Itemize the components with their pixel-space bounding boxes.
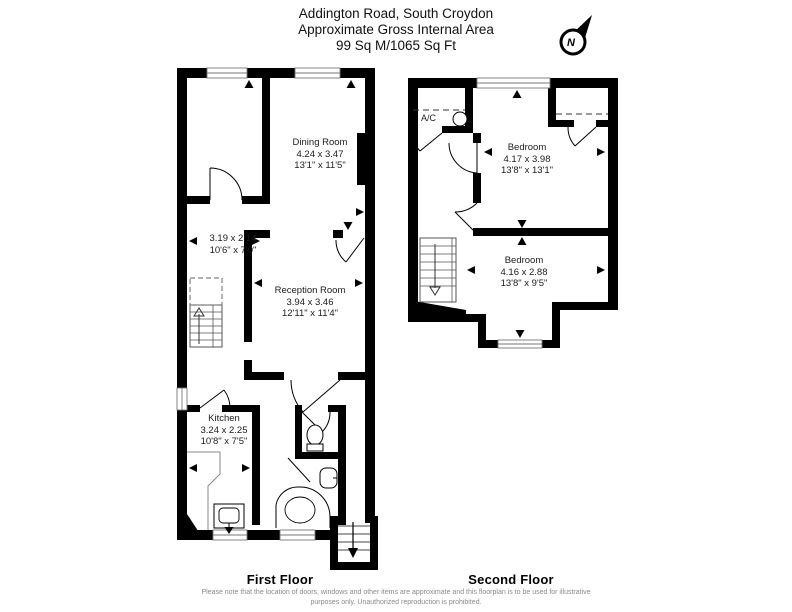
page-title: Addington Road, South Croydon	[299, 6, 493, 22]
sf-cylinder	[453, 112, 467, 126]
sf-ac-wall-s1	[408, 126, 418, 133]
floorplan-page: { "header": { "line1": "Addington Road, …	[0, 0, 792, 612]
ff-wall-reception-s1	[244, 372, 284, 380]
ff-chimney-breast	[357, 133, 375, 185]
disclaimer-line-2: purposes only. Unauthorized reproduction…	[310, 598, 481, 608]
ff-wall-store-s2	[242, 196, 270, 204]
sf-ac-wall-s2	[442, 126, 473, 133]
kitchen-metric: 3.24 x 2.25	[200, 425, 247, 437]
ff-staircase-up	[190, 278, 222, 347]
ff-wall-lobby1	[187, 405, 200, 412]
bedroom1-metric: 4.17 x 3.98	[501, 154, 553, 166]
ff-steps-down	[338, 522, 370, 558]
sf-dimension-markers	[467, 90, 605, 338]
second-floor-caption: Second Floor	[468, 572, 553, 587]
sf-bedroom-divider	[481, 228, 608, 236]
ff-stairwell-w	[330, 516, 338, 570]
dining-name: Dining Room	[293, 137, 348, 149]
ff-wall-kitchen-e	[252, 405, 260, 525]
toilet	[307, 425, 323, 451]
sf-windows	[477, 78, 550, 348]
sf-hall-wall-1	[473, 133, 481, 143]
second-floor-plan	[408, 78, 618, 348]
reception-imperial: 12'11" x 11'4"	[275, 308, 346, 320]
dining-imperial: 13'1" x 11'5"	[293, 160, 348, 172]
bedroom2-imperial: 13'8" x 9'5"	[500, 278, 547, 290]
basin	[320, 468, 337, 488]
sf-staircase-down	[420, 238, 456, 302]
ff-stairs-dashed-void	[190, 278, 222, 305]
bedroom2-metric: 4.16 x 2.88	[500, 267, 547, 279]
sf-hall-wall-2	[473, 173, 481, 203]
kitchen-imperial: 10'8" x 7'5"	[200, 436, 247, 448]
ff-wall-store-dining	[262, 78, 270, 200]
ff-wall-reception-s2	[338, 372, 365, 380]
page-subtitle-area: Approximate Gross Internal Area	[298, 22, 494, 38]
bedroom2-name: Bedroom	[500, 255, 547, 267]
store-imperial: 10'6" x 7'0"	[209, 245, 256, 257]
ac-cupboard-label: A/C	[421, 113, 436, 123]
kitchen-name: Kitchen	[200, 413, 247, 425]
ff-wall-left	[177, 68, 187, 520]
sf-wall-bottom-l	[408, 314, 486, 322]
ff-wall-wc-w	[295, 412, 302, 459]
sf-wall-right	[608, 78, 618, 306]
bedroom1-name: Bedroom	[501, 142, 553, 154]
ff-wall-wc-s	[295, 452, 343, 459]
ff-wall-dining-s2	[333, 230, 343, 238]
bathtub	[276, 487, 330, 528]
ff-stairwell-s	[330, 562, 378, 570]
room-label-bedroom2: Bedroom 4.16 x 2.88 13'8" x 9'5"	[500, 255, 547, 290]
first-floor-caption: First Floor	[247, 572, 313, 587]
compass-north-label: N	[567, 37, 575, 49]
room-label-bedroom1: Bedroom 4.17 x 3.98 13'8" x 13'1"	[501, 142, 553, 177]
sf-wall-bottom-r	[552, 302, 618, 310]
sf-hall-wall-3	[473, 228, 481, 236]
dining-metric: 4.24 x 3.47	[293, 149, 348, 161]
ff-stairwell-e	[370, 516, 378, 570]
ff-wall-store-s1	[187, 196, 210, 204]
room-label-dining: Dining Room 4.24 x 3.47 13'1" x 11'5"	[293, 137, 348, 172]
reception-name: Reception Room	[275, 285, 346, 297]
sf-wall-left	[408, 78, 418, 314]
room-label-kitchen: Kitchen 3.24 x 2.25 10'8" x 7'5"	[200, 413, 247, 448]
bedroom1-imperial: 13'8" x 13'1"	[501, 165, 553, 177]
ff-wall-hall-e	[338, 405, 346, 525]
page-subtitle-size: 99 Sq M/1065 Sq Ft	[336, 38, 456, 54]
store-metric: 3.19 x 2.14	[209, 233, 256, 245]
sf-closet-wall-s2	[596, 120, 618, 127]
reception-metric: 3.94 x 3.46	[275, 297, 346, 309]
floorplan-canvas	[0, 0, 792, 612]
sf-closet-wall-s1	[548, 120, 574, 127]
room-label-reception: Reception Room 3.94 x 3.46 12'11" x 11'4…	[275, 285, 346, 320]
compass-icon	[561, 15, 592, 54]
disclaimer-line-1: Please note that the location of doors, …	[201, 588, 590, 598]
kitchen-sink	[214, 504, 244, 528]
room-label-store: 3.19 x 2.14 10'6" x 7'0"	[209, 233, 256, 256]
